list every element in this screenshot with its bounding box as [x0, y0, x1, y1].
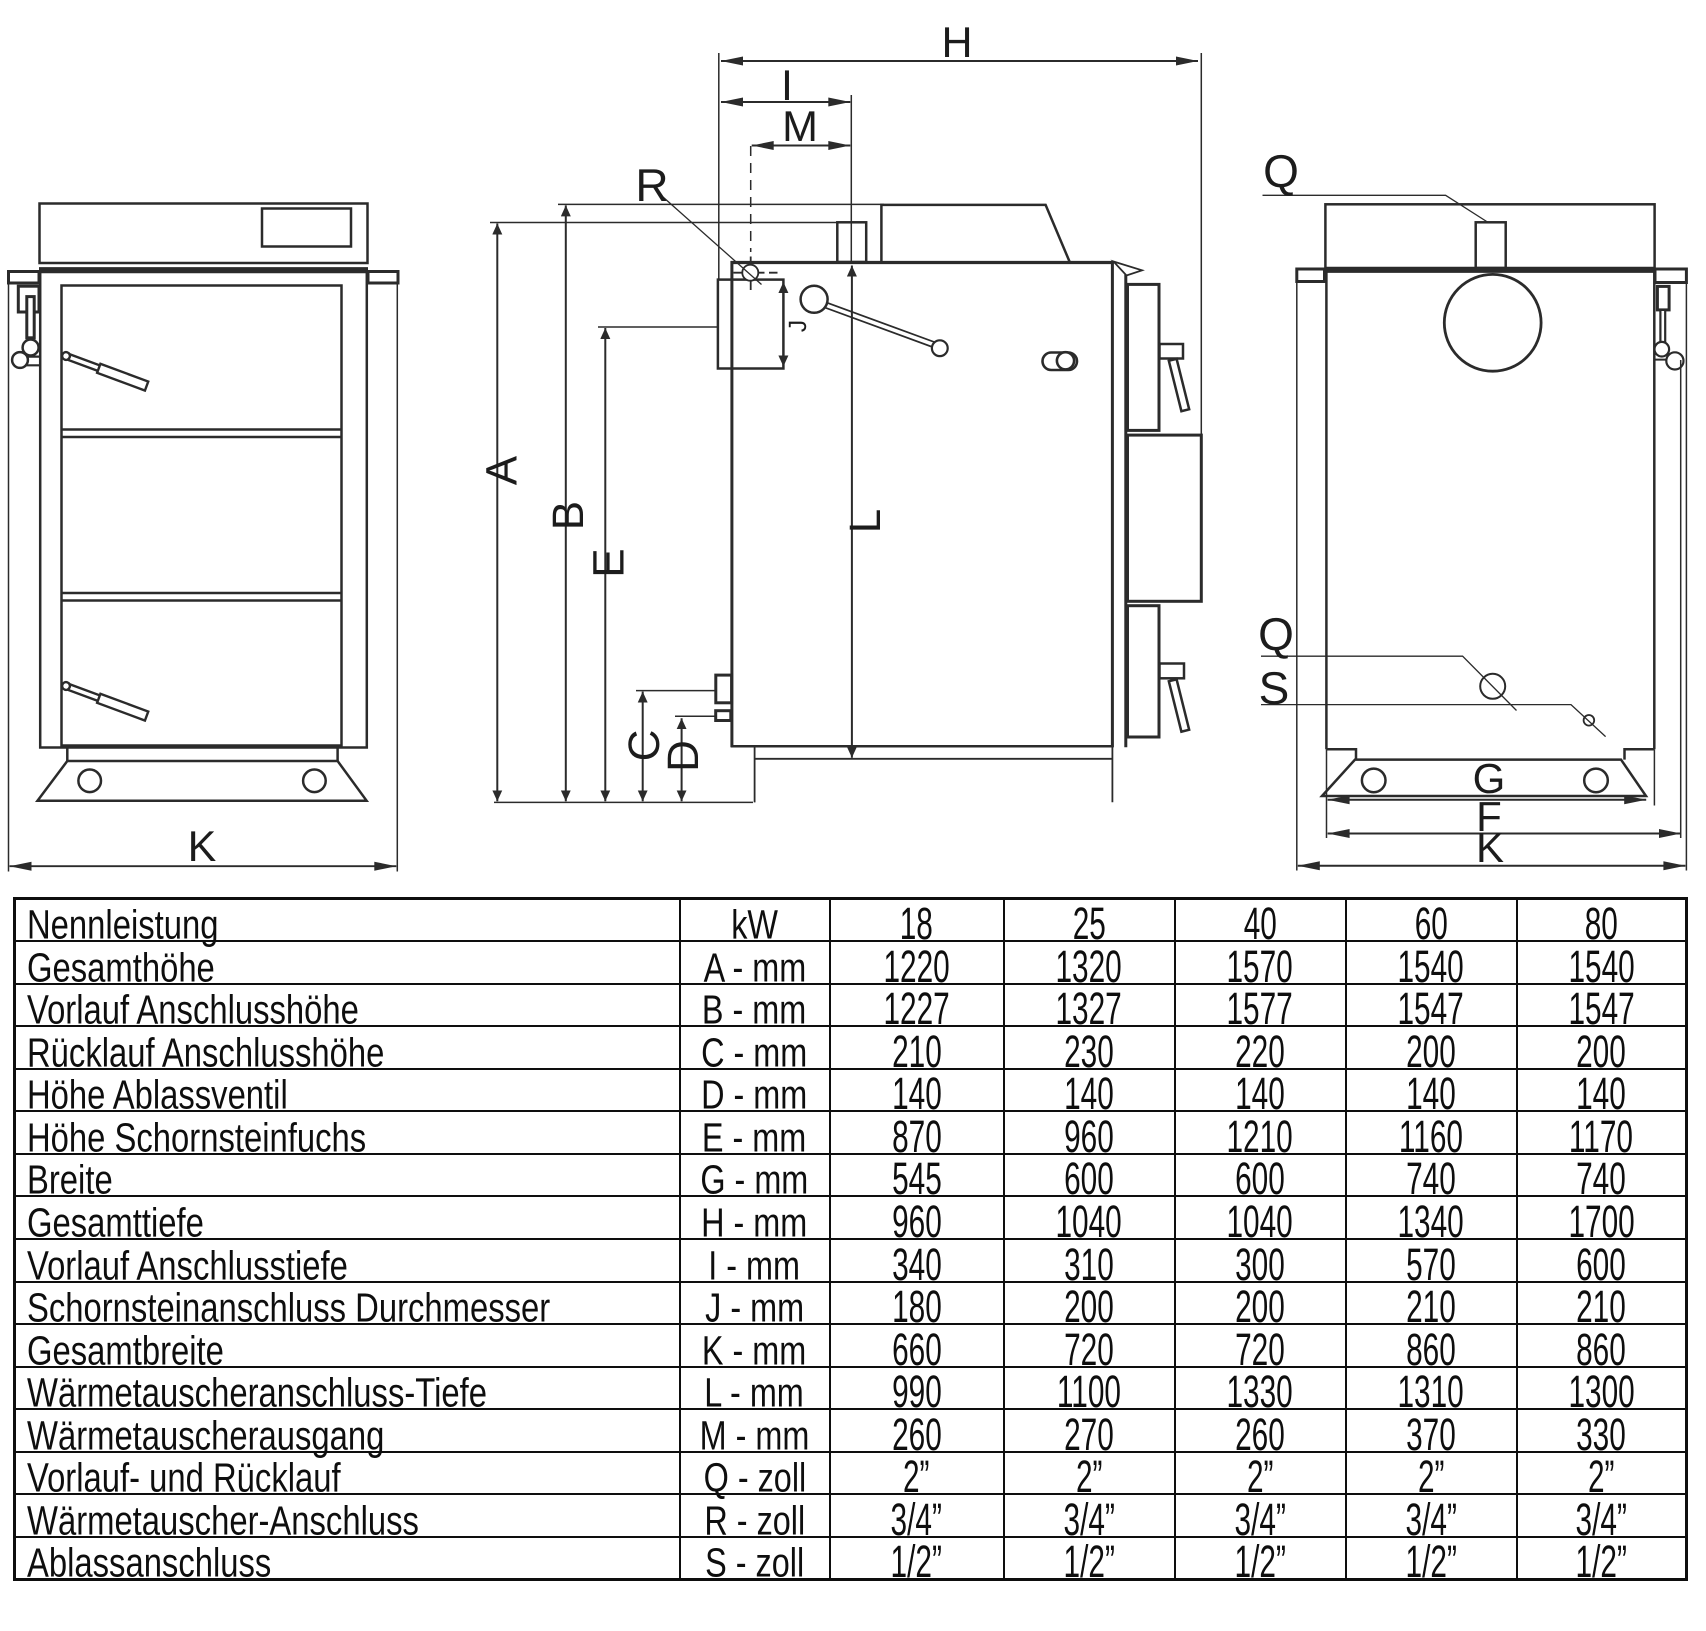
svg-text:H: H — [941, 19, 972, 67]
svg-text:K: K — [1476, 824, 1504, 871]
svg-text:S: S — [1259, 662, 1290, 714]
svg-text:R: R — [635, 159, 668, 211]
svg-text:E: E — [585, 548, 634, 577]
svg-text:L: L — [841, 509, 890, 533]
svg-text:Q: Q — [1263, 145, 1299, 197]
svg-text:J: J — [784, 320, 812, 333]
svg-text:B: B — [544, 501, 593, 530]
svg-text:Q: Q — [1258, 608, 1294, 660]
svg-text:A: A — [478, 455, 527, 485]
svg-text:D: D — [659, 740, 708, 772]
svg-text:K: K — [188, 823, 217, 871]
svg-text:M: M — [782, 103, 818, 151]
